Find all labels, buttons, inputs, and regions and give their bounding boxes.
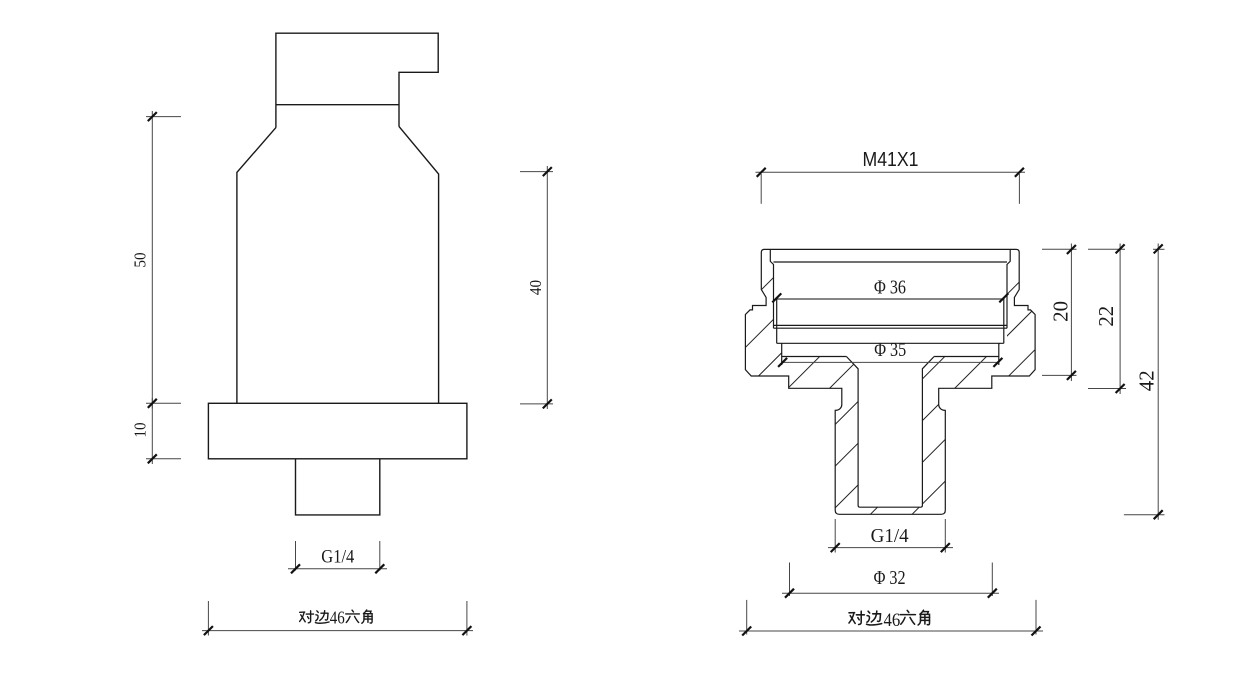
svg-text:20: 20 (1048, 301, 1072, 322)
svg-text:Φ 36: Φ 36 (874, 278, 906, 299)
svg-text:Φ 32: Φ 32 (874, 568, 906, 589)
svg-text:46: 46 (884, 610, 901, 631)
svg-text:G1/4: G1/4 (321, 546, 354, 567)
svg-text:46: 46 (330, 608, 345, 628)
svg-text:M41X1: M41X1 (863, 148, 919, 171)
svg-text:42: 42 (1135, 370, 1159, 391)
svg-text:G1/4: G1/4 (871, 526, 909, 547)
svg-text:22: 22 (1094, 306, 1118, 327)
svg-text:10: 10 (131, 422, 150, 437)
svg-text:Φ 35: Φ 35 (874, 340, 906, 361)
svg-text:40: 40 (526, 280, 545, 295)
svg-text:50: 50 (131, 252, 150, 267)
